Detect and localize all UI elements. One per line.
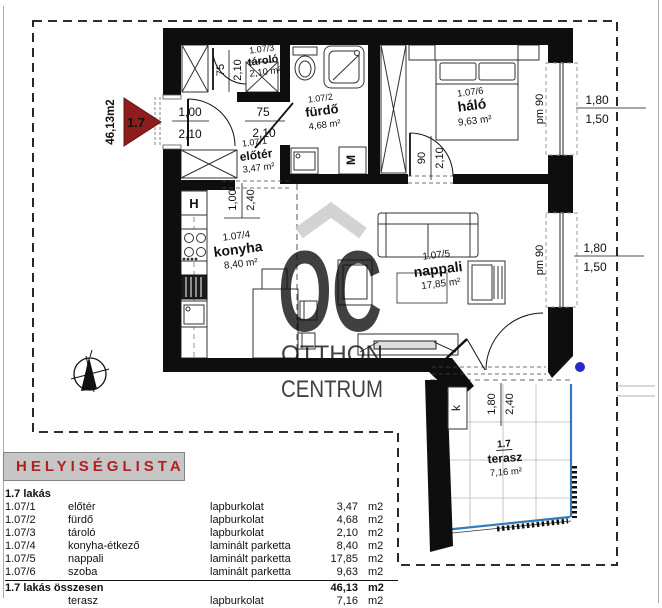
bathroom-door-dims: 75 2,10 xyxy=(245,105,285,140)
blue-dot-marker xyxy=(575,362,585,372)
row-code: 1.07/2 xyxy=(5,514,68,527)
row-name: terasz xyxy=(68,595,210,608)
storage-door-width: 75 xyxy=(215,64,227,76)
table-row: 1.07/4 konyha-étkező laminált parketta 8… xyxy=(5,540,398,553)
storage-door-dims: 75 2,10 xyxy=(215,50,244,92)
window2-width: 1,80 xyxy=(583,241,607,255)
row-material: lapburkolat xyxy=(210,514,330,527)
watermark-line1: OTTHON xyxy=(281,341,383,368)
room-label-furdo: 1.07/2 fürdő 4,68 m² xyxy=(303,91,341,133)
terrace-k-mark: k xyxy=(449,404,463,411)
north-compass xyxy=(71,350,109,392)
row-material: laminált parketta xyxy=(210,553,330,566)
row-unit: m2 xyxy=(358,540,388,553)
room-label-terasz: 1.7 terasz 7,16 m² xyxy=(486,438,523,479)
terrace-door-dims: 1,80 2,40 xyxy=(486,383,516,426)
row-name: fürdő xyxy=(68,514,210,527)
row-code: 1.07/3 xyxy=(5,527,68,540)
room-label-tarolo: 1.07/3 tároló 2,10 m² xyxy=(246,42,282,80)
window1-sill: pm 90 xyxy=(534,94,546,125)
terrace-door-height: 2,40 xyxy=(504,393,516,414)
window-living xyxy=(546,213,577,307)
window-bedroom xyxy=(546,63,577,155)
window1-height: 1,50 xyxy=(585,112,609,126)
watermark: OC OTTHON CENTRUM xyxy=(278,210,383,403)
terrace-door-width: 1,80 xyxy=(486,393,498,414)
terrace-k-box: k xyxy=(448,387,467,429)
row-value: 9,63 xyxy=(330,566,358,579)
stove xyxy=(181,229,207,261)
row-name: konyha-étkező xyxy=(68,540,210,553)
row-value: 3,47 xyxy=(330,501,358,514)
row-code: 1.07/6 xyxy=(5,566,68,579)
toilet xyxy=(293,47,317,80)
row-name: előtér xyxy=(68,501,210,514)
terasz-area: 7,16 m² xyxy=(489,466,522,479)
row-name: nappali xyxy=(68,553,210,566)
row-material: laminált parketta xyxy=(210,566,330,579)
table-row: 1.07/5 nappali laminált parketta 17,85 m… xyxy=(5,553,398,566)
row-code xyxy=(5,595,68,608)
shower xyxy=(324,46,364,88)
total-label: 1.7 lakás összesen xyxy=(5,582,330,595)
unit-marker-label: 1.7 xyxy=(127,115,145,130)
entry-width: 1,00 xyxy=(178,105,202,119)
unit-marker: 1.7 46,13m2 xyxy=(105,98,161,146)
row-material: lapburkolat xyxy=(210,527,330,540)
unit-area-label: 46,13m2 xyxy=(105,99,117,144)
dish-rack xyxy=(181,275,207,299)
bedroom-door-height: 2,10 xyxy=(434,147,446,168)
table-row: 1.07/6 szoba laminált parketta 9,63 m2 xyxy=(5,566,398,579)
room-list-table: 1.7 lakás 1.07/1 előtér lapburkolat 3,47… xyxy=(5,488,398,608)
kitchen-counter xyxy=(181,190,207,358)
floorplan-page: { "plan": { "unit": { "area_label": "46,… xyxy=(0,0,662,603)
furdo-name: fürdő xyxy=(304,101,339,120)
row-unit: m2 xyxy=(358,595,388,608)
room-label-eloter: 1.07/1 előtér 3,47 m² xyxy=(238,135,276,176)
row-material: lapburkolat xyxy=(210,501,330,514)
bathroom-door-width: 75 xyxy=(256,105,270,119)
row-value: 2,10 xyxy=(330,527,358,540)
bedroom-door-width: 90 xyxy=(416,152,428,164)
row-material: lapburkolat xyxy=(210,595,330,608)
row-unit: m2 xyxy=(358,566,388,579)
furdo-area: 4,68 m² xyxy=(308,118,341,133)
pass-width: 1,00 xyxy=(227,189,239,210)
room-list-title: HELYISÉGLISTA xyxy=(16,458,185,475)
storage-door-height: 2,10 xyxy=(232,59,244,80)
table-row: 1.07/1 előtér lapburkolat 3,47 m2 xyxy=(5,501,398,514)
bathroom-sink xyxy=(291,148,318,174)
pass-height: 2,40 xyxy=(245,189,257,210)
row-value: 7,16 xyxy=(330,595,358,608)
row-unit: m2 xyxy=(358,514,388,527)
row-name: tároló xyxy=(68,527,210,540)
row-value: 4,68 xyxy=(330,514,358,527)
total-unit: m2 xyxy=(358,582,388,595)
row-material: laminált parketta xyxy=(210,540,330,553)
row-code: 1.07/1 xyxy=(5,501,68,514)
table-extra-row: terasz lapburkolat 7,16 m2 xyxy=(5,595,398,608)
watermark-line2: CENTRUM xyxy=(281,376,383,403)
bedroom-door-dims: 90 2,10 xyxy=(416,136,446,180)
extension-lines xyxy=(617,386,655,396)
fridge-mark: H xyxy=(189,196,198,211)
bedroom-wardrobe xyxy=(381,45,406,173)
row-value: 8,40 xyxy=(330,540,358,553)
row-code: 1.07/4 xyxy=(5,540,68,553)
kitchen-sink xyxy=(181,301,207,327)
terasz-code: 1.7 xyxy=(497,439,512,451)
konyha-area: 8,40 m² xyxy=(223,257,259,272)
watermark-monogram: OC xyxy=(278,228,382,356)
window1-width: 1,80 xyxy=(585,93,609,107)
room-label-konyha: 1.07/4 konyha 8,40 m² xyxy=(211,228,265,273)
window2-height: 1,50 xyxy=(583,260,607,274)
row-unit: m2 xyxy=(358,527,388,540)
table-row: 1.07/2 fürdő lapburkolat 4,68 m2 xyxy=(5,514,398,527)
row-code: 1.07/5 xyxy=(5,553,68,566)
armchair-right xyxy=(468,261,505,304)
terasz-name: terasz xyxy=(487,450,523,466)
washer-mark: M xyxy=(344,155,358,165)
entry-door-dims: 1,00 2,10 xyxy=(172,105,209,141)
window2-sill: pm 90 xyxy=(534,245,546,276)
table-total-row: 1.7 lakás összesen 46,13 m2 xyxy=(5,580,398,595)
row-value: 17,85 xyxy=(330,553,358,566)
room-list-header: HELYISÉGLISTA xyxy=(3,452,185,481)
table-row: 1.07/3 tároló lapburkolat 2,10 m2 xyxy=(5,527,398,540)
room-list-group-label: 1.7 lakás xyxy=(5,488,398,501)
row-name: szoba xyxy=(68,566,210,579)
row-unit: m2 xyxy=(358,553,388,566)
row-unit: m2 xyxy=(358,501,388,514)
total-value: 46,13 xyxy=(330,582,358,595)
entry-height: 2,10 xyxy=(178,127,202,141)
